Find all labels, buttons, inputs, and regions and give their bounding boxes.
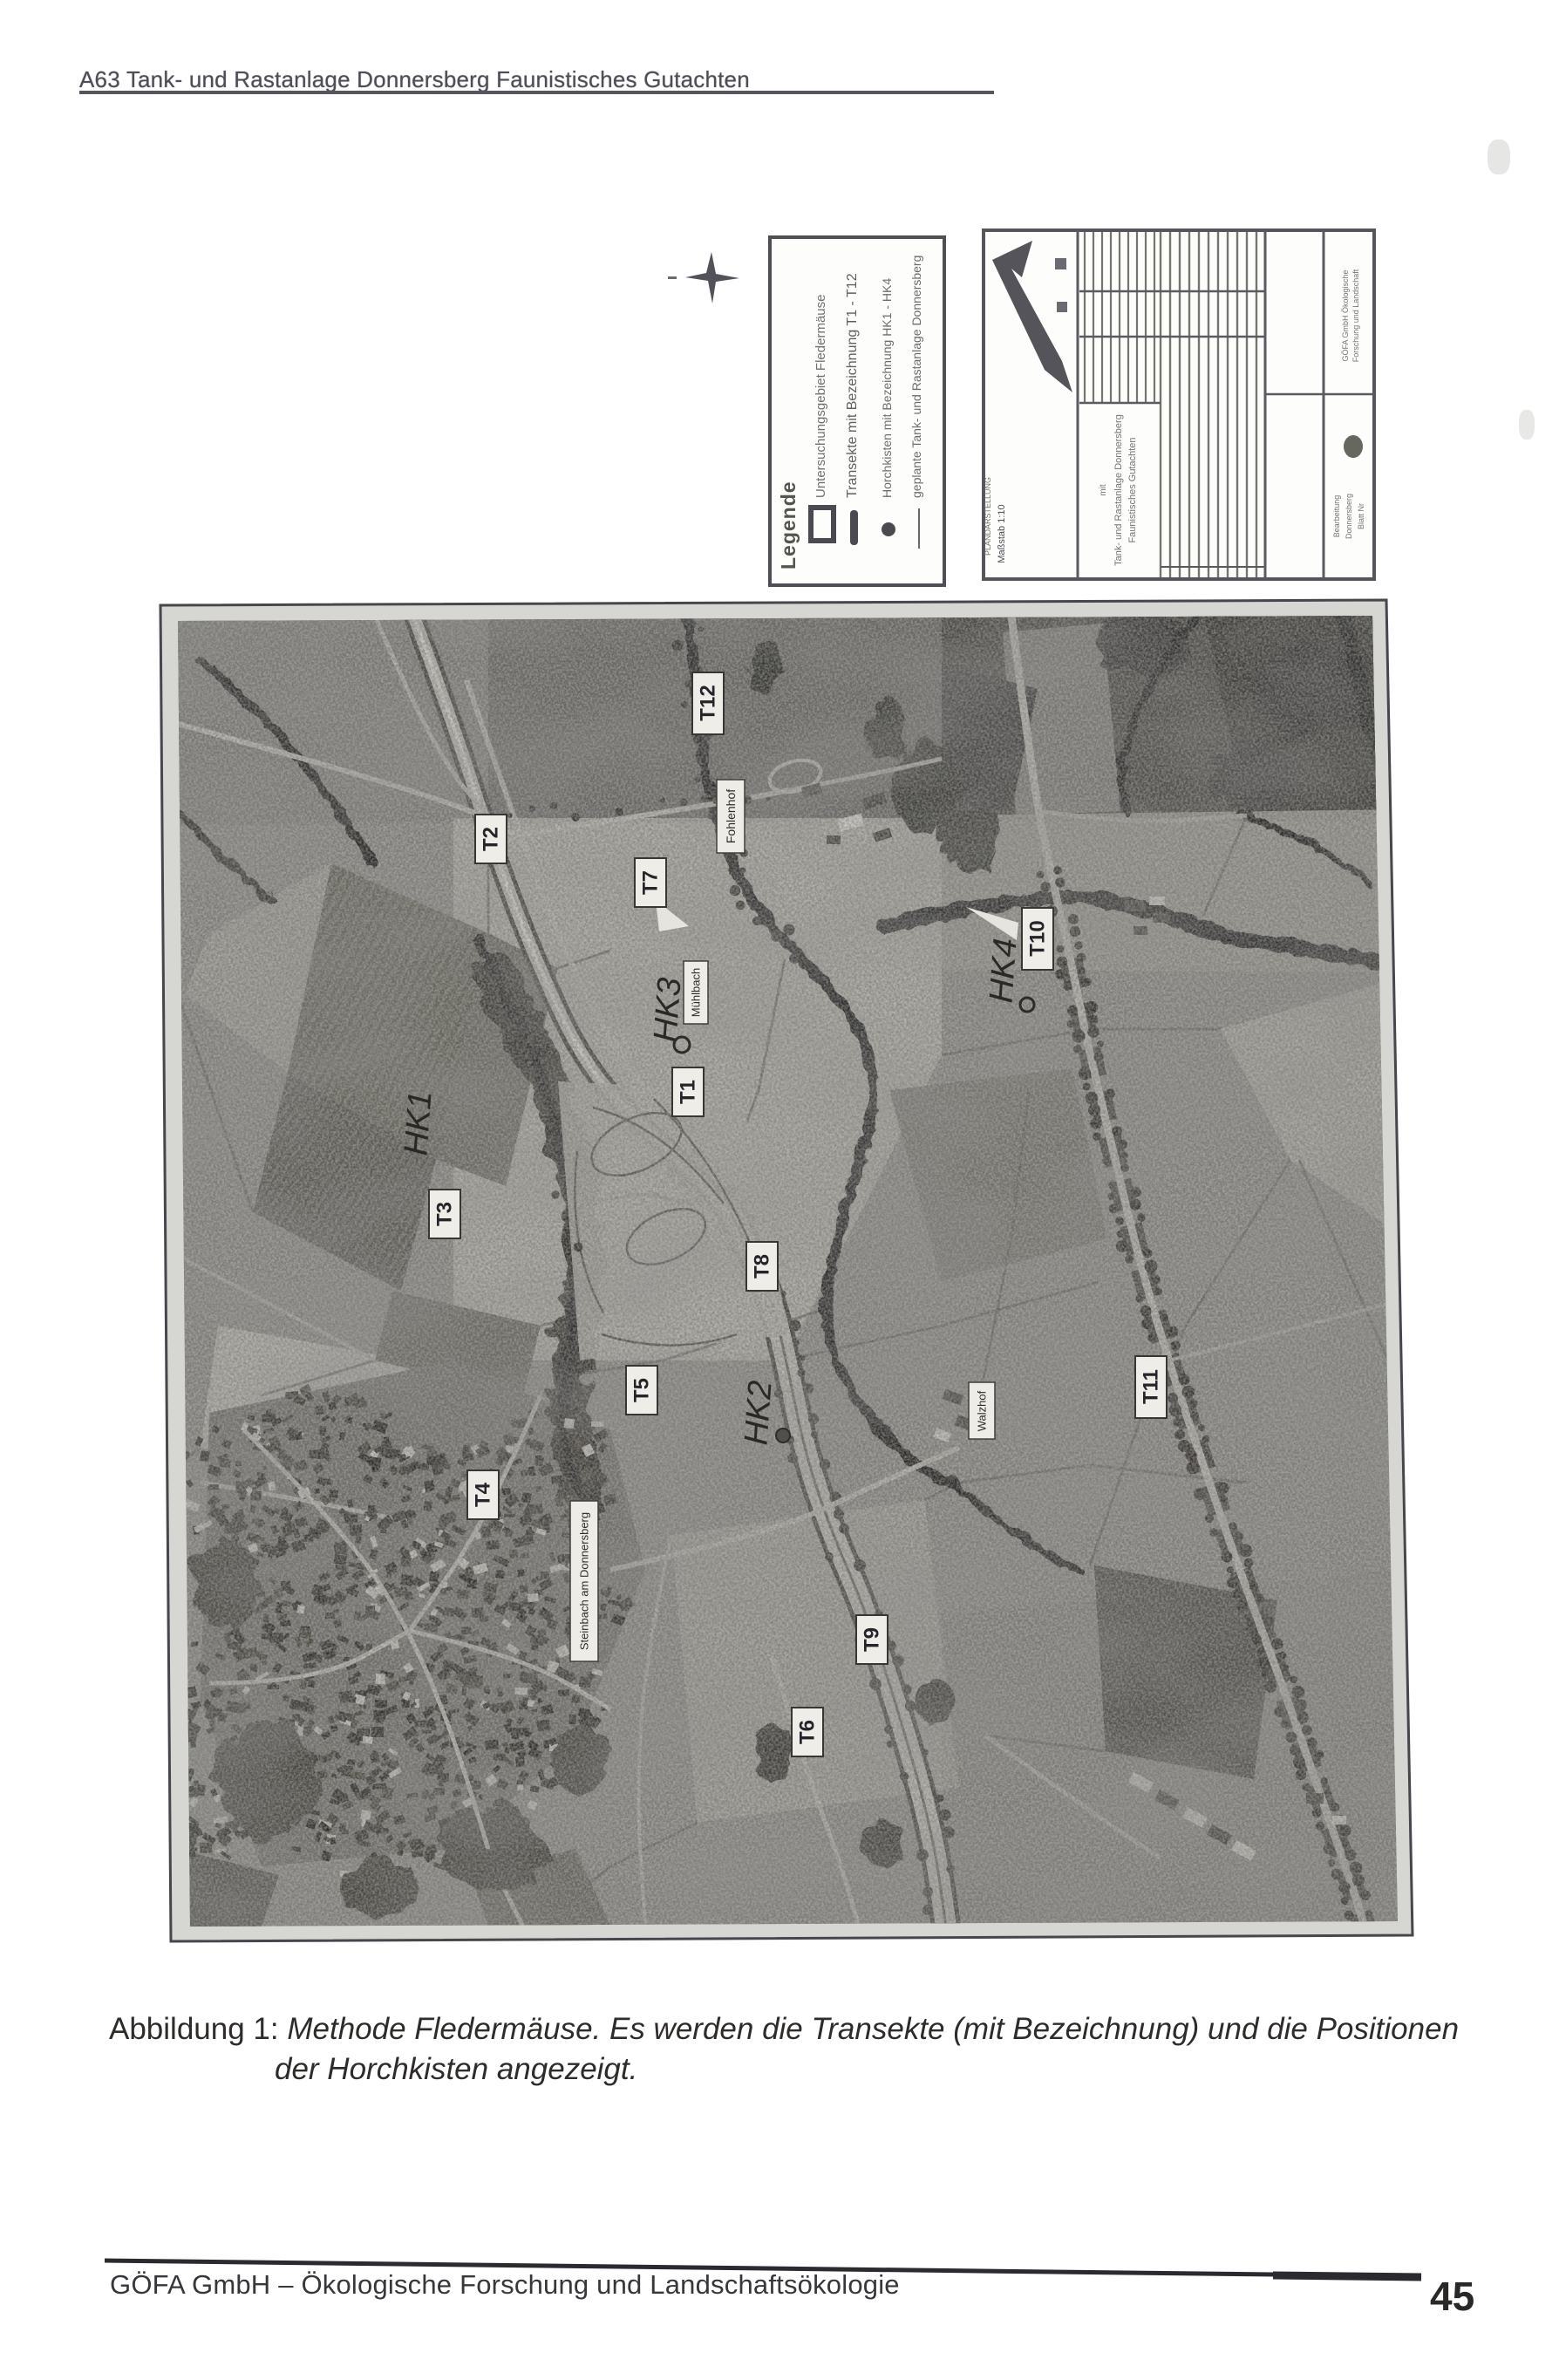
svg-text:HK1: HK1 [398, 1090, 439, 1157]
svg-text:T11: T11 [1140, 1369, 1163, 1404]
svg-text:T5: T5 [630, 1378, 654, 1402]
svg-text:T2: T2 [480, 827, 503, 851]
svg-text:mit: mit [1099, 484, 1108, 496]
svg-text:T12: T12 [697, 685, 720, 720]
svg-text:PLANDARSTELLUNG: PLANDARSTELLUNG [984, 477, 992, 556]
svg-text:T8: T8 [751, 1254, 774, 1279]
svg-text:T9: T9 [861, 1627, 884, 1652]
svg-text:Forschung und Landschaft: Forschung und Landschaft [1351, 269, 1360, 362]
svg-text:T6: T6 [796, 1720, 820, 1744]
svg-text:T4: T4 [472, 1482, 495, 1507]
svg-text:HK3: HK3 [647, 977, 688, 1044]
svg-text:Maßstab 1:10: Maßstab 1:10 [997, 504, 1007, 563]
svg-text:T7: T7 [639, 870, 663, 895]
svg-text:T1: T1 [677, 1080, 700, 1104]
svg-text:T10: T10 [1026, 920, 1050, 956]
svg-text:Bearbeitung: Bearbeitung [1332, 495, 1341, 538]
svg-text:Faunistisches Gutachten: Faunistisches Gutachten [1127, 437, 1138, 542]
svg-text:Mühlbach: Mühlbach [690, 968, 703, 1017]
svg-text:Blatt Nr: Blatt Nr [1357, 503, 1365, 529]
svg-text:HK2: HK2 [738, 1380, 779, 1447]
svg-text:Tank- und Rastanlage Donnersbe: Tank- und Rastanlage Donnersberg [1113, 414, 1124, 566]
svg-text:T3: T3 [433, 1202, 457, 1226]
svg-text:HK4: HK4 [983, 938, 1024, 1005]
svg-text:Walzhof: Walzhof [976, 1390, 989, 1431]
svg-text:Fohlenhof: Fohlenhof [724, 789, 738, 843]
svg-text:GÖFA GmbH Ökologische: GÖFA GmbH Ökologische [1341, 269, 1350, 361]
svg-text:Donnersberg: Donnersberg [1345, 494, 1353, 539]
svg-text:Steinbach am Donnersberg: Steinbach am Donnersberg [578, 1512, 591, 1650]
